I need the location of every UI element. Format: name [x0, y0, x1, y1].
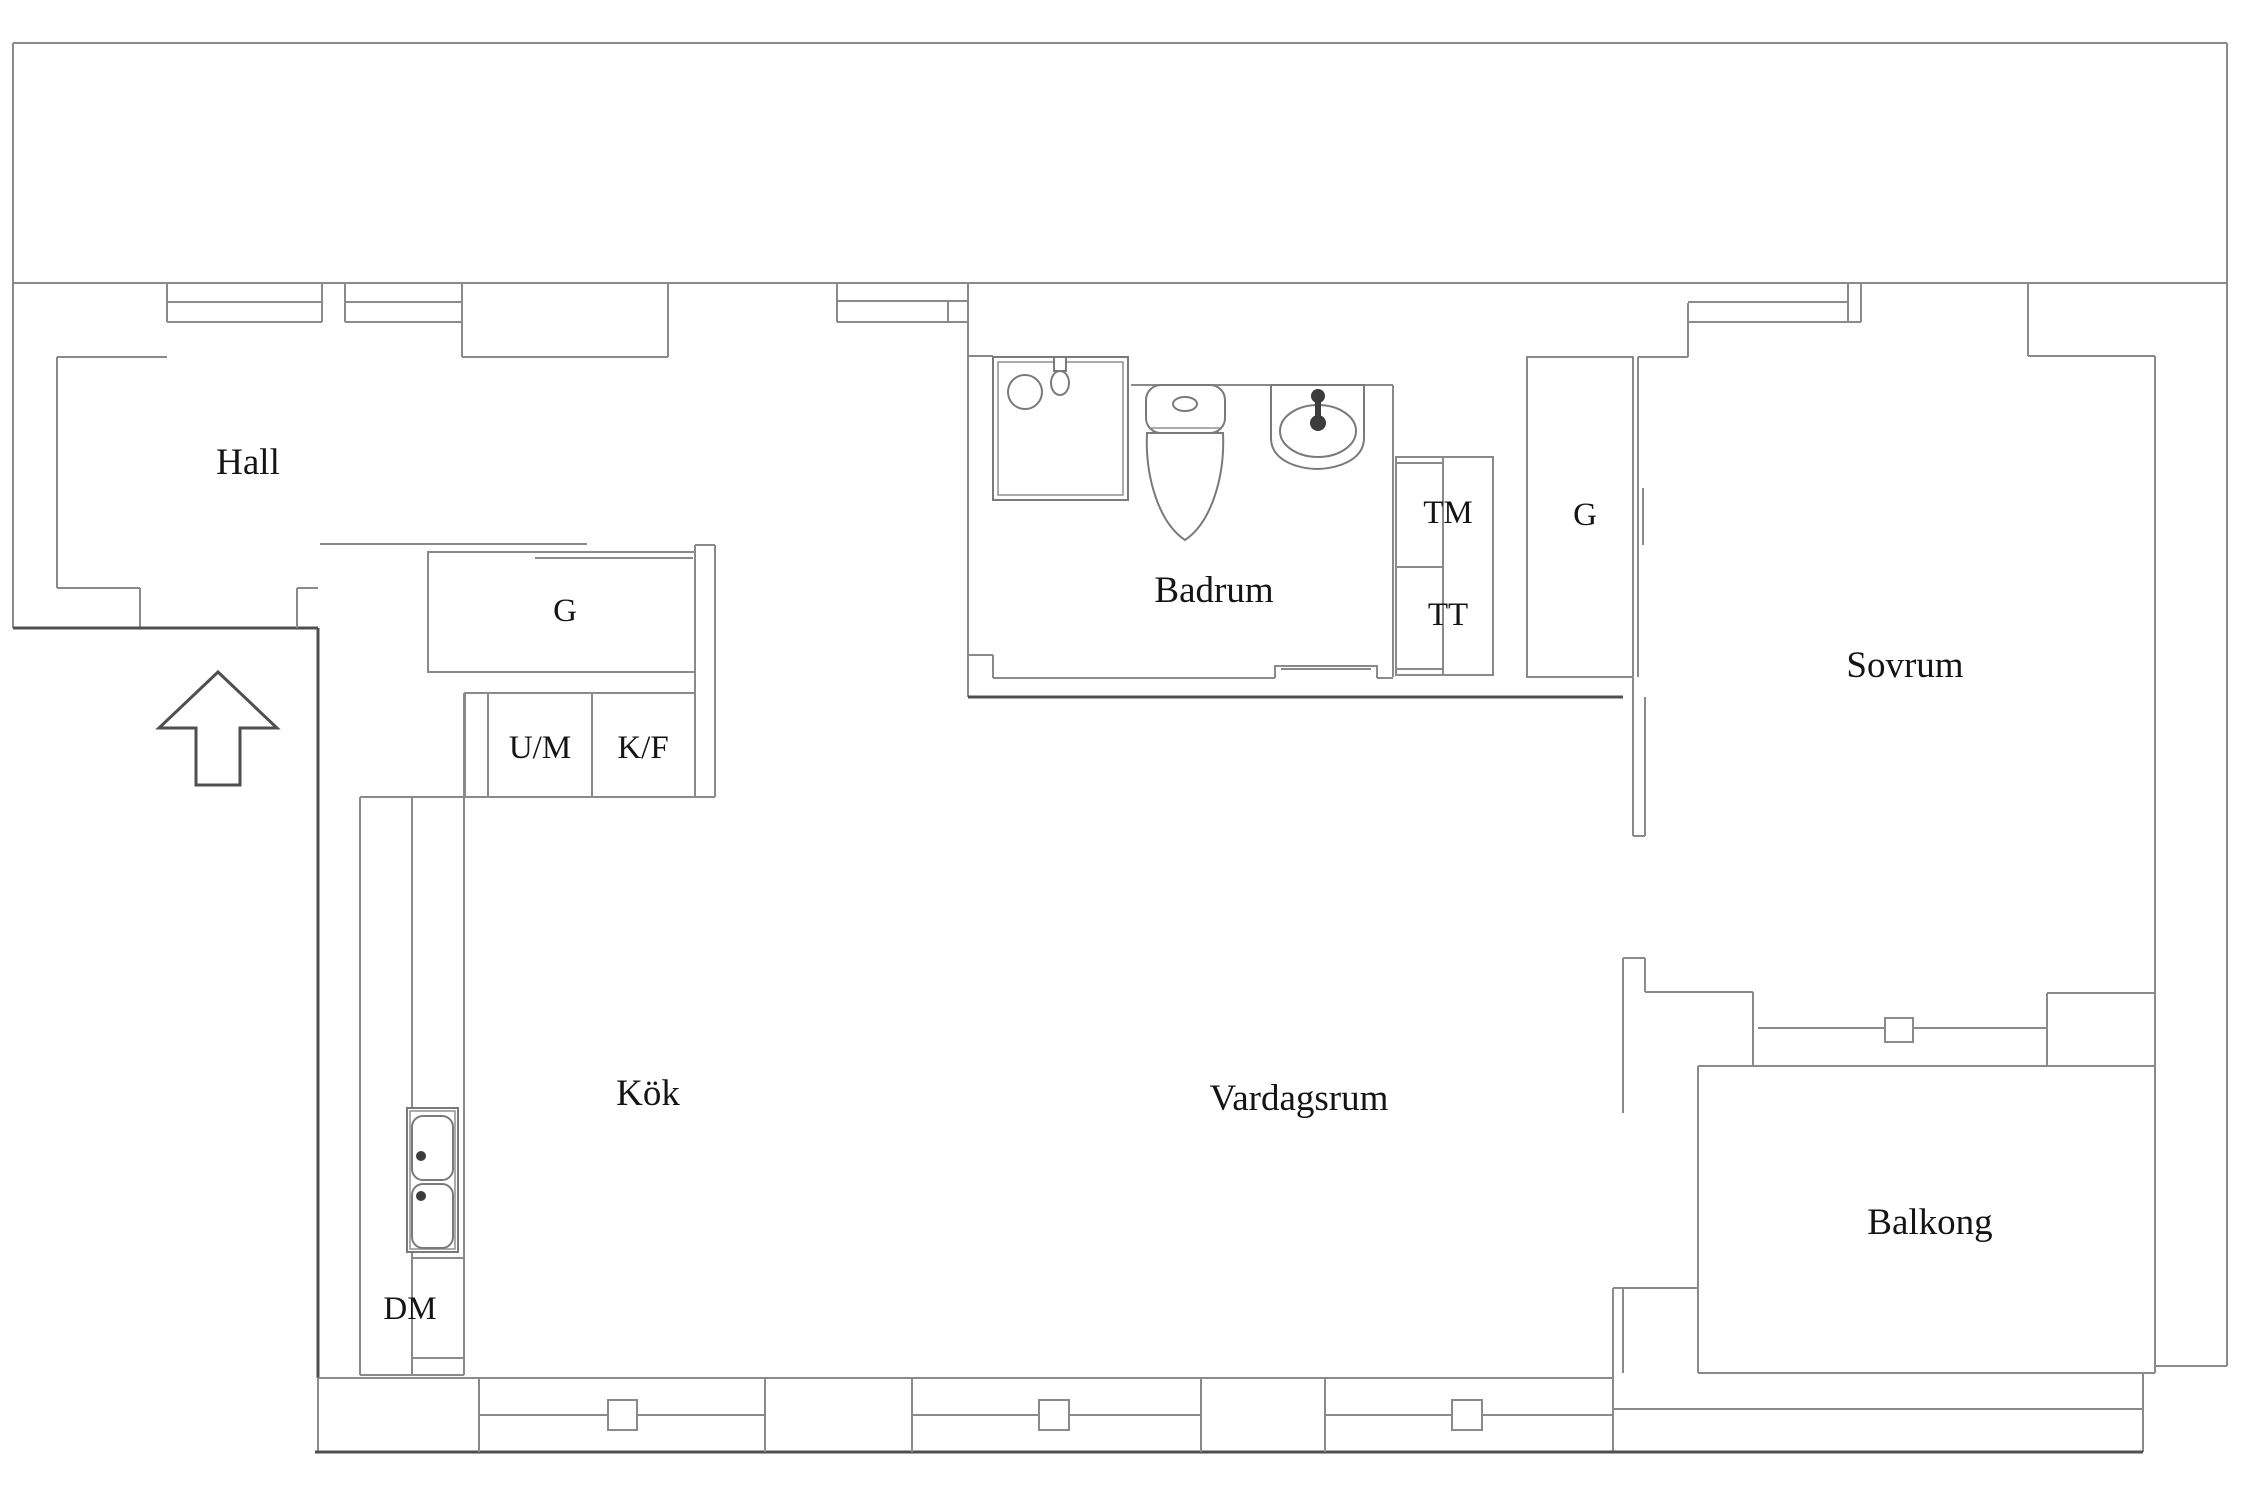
south-facade	[315, 1288, 2143, 1452]
wardrobe-g-sovrum	[1527, 357, 1645, 836]
label-tt: TT	[1428, 597, 1468, 633]
label-badrum: Badrum	[1154, 570, 1273, 611]
hall-windows	[167, 283, 462, 322]
label-dm: DM	[383, 1291, 436, 1327]
hall-walls	[13, 283, 668, 628]
window-mullion-3	[1452, 1400, 1482, 1430]
hall-top-right-block	[462, 283, 668, 357]
label-tm: TM	[1423, 495, 1473, 531]
toilet-icon	[1146, 385, 1225, 540]
exterior-walls	[13, 43, 2227, 1366]
label-hall: Hall	[216, 442, 280, 483]
balcony-lower-band	[1613, 1373, 2143, 1452]
window-mullion-2	[1039, 1400, 1069, 1430]
laundry-unit	[1396, 457, 1493, 675]
corridor-window	[837, 283, 968, 322]
label-vardagsrum: Vardagsrum	[1210, 1078, 1389, 1119]
window-mullion-1	[608, 1400, 637, 1430]
entrance-arrow-icon	[159, 672, 277, 785]
label-um: U/M	[509, 730, 571, 766]
balcony-walls	[1613, 1066, 2155, 1452]
kitchen-walls	[297, 544, 715, 1378]
bedroom-ne-notch	[2028, 283, 2155, 356]
bedroom-window-mullion	[1885, 1018, 1913, 1042]
kitchen-counter	[360, 693, 464, 1375]
shower-icon	[993, 357, 1128, 500]
label-kok: Kök	[616, 1073, 680, 1114]
top-band-outline	[13, 43, 2227, 1366]
bathroom-door-threshold	[1275, 666, 1377, 678]
bathroom-sink-icon	[1271, 385, 1364, 469]
label-sovrum: Sovrum	[1846, 645, 1963, 686]
bedroom-north-window	[1688, 283, 1861, 322]
label-kf: K/F	[617, 730, 668, 766]
kitchen-sink-icon	[407, 1108, 458, 1252]
label-balkong: Balkong	[1867, 1202, 1992, 1243]
label-garderob-kok: G	[553, 593, 577, 629]
floor-plan: Hall Badrum Sovrum Kök Vardagsrum Balkon…	[0, 0, 2250, 1500]
floor-plan-canvas: Hall Badrum Sovrum Kök Vardagsrum Balkon…	[0, 0, 2250, 1500]
label-garderob-sovrum: G	[1573, 497, 1597, 533]
bathroom-walls	[837, 283, 1623, 697]
